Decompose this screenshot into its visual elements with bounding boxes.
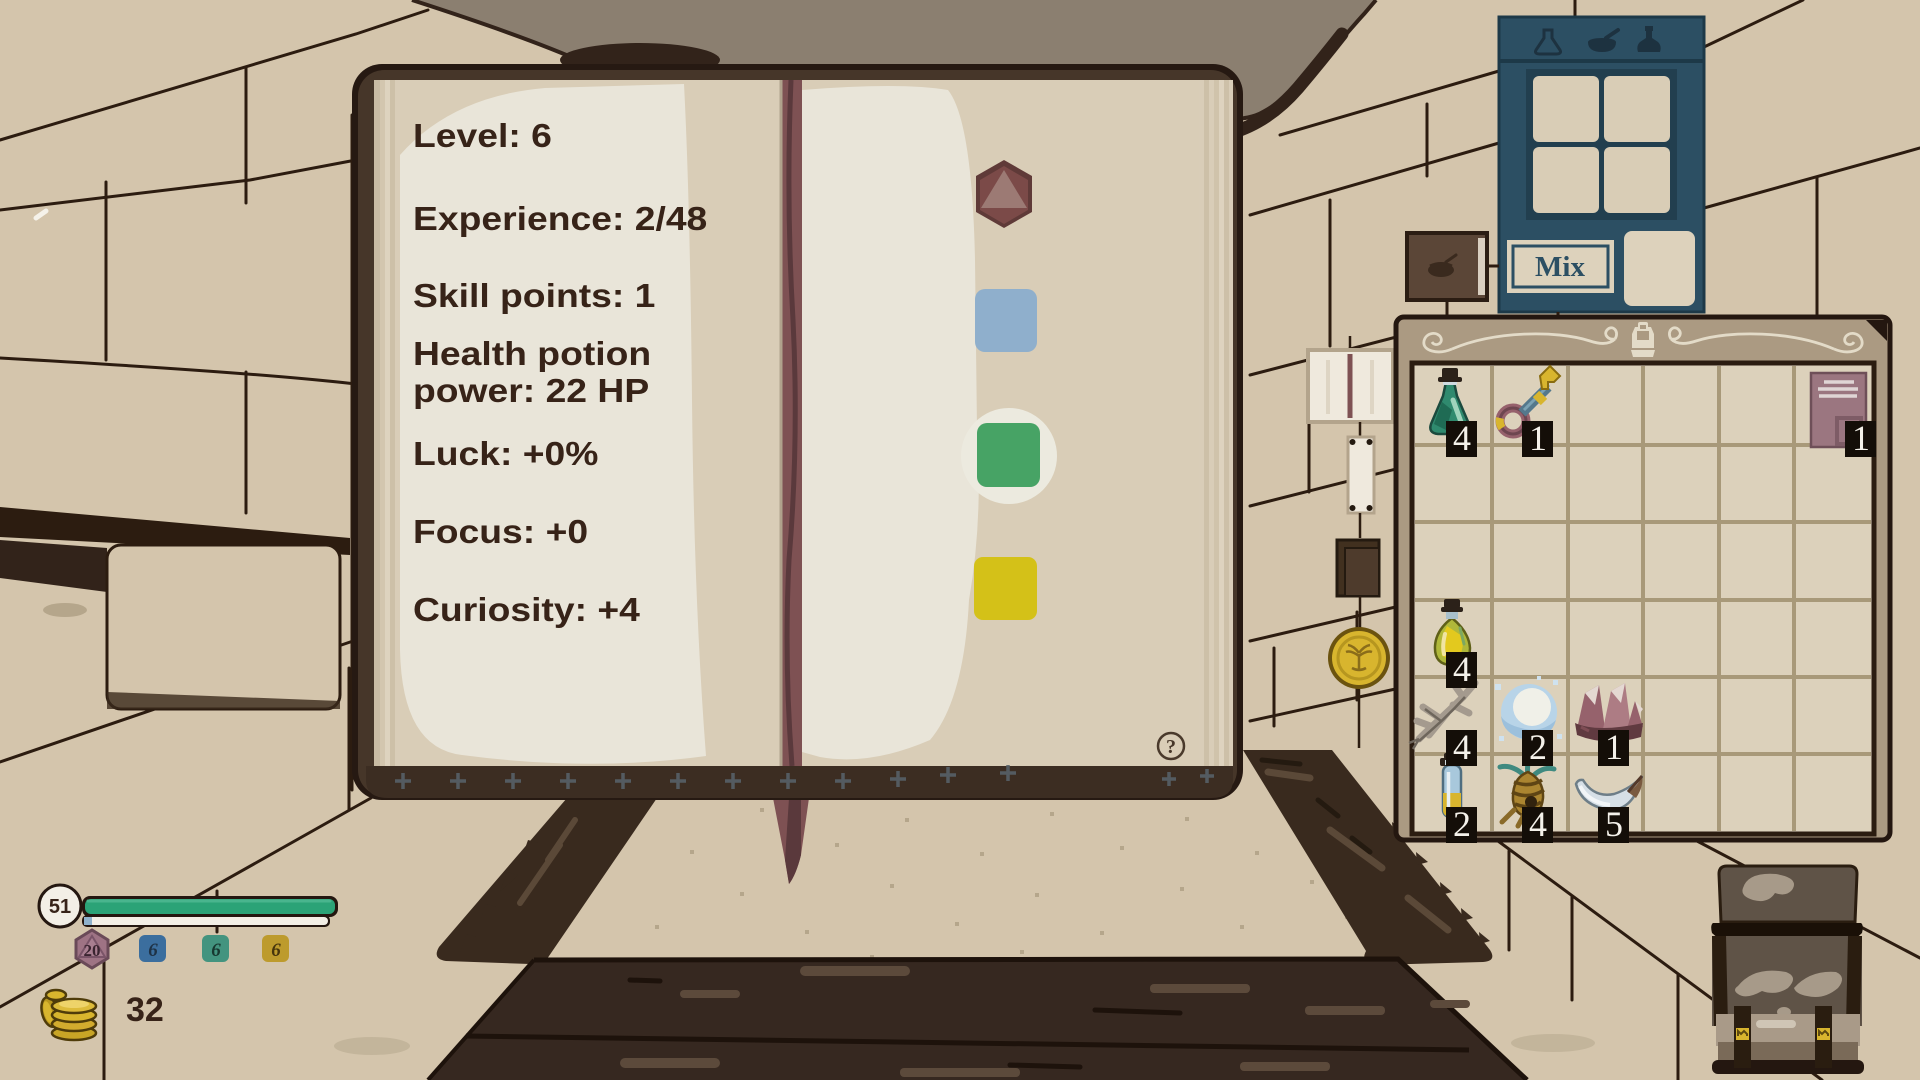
svg-text:?: ? [1166, 736, 1176, 758]
svg-text:4: 4 [1453, 727, 1471, 767]
svg-text:6: 6 [271, 940, 281, 961]
svg-text:1: 1 [1605, 727, 1623, 767]
svg-text:4: 4 [1453, 418, 1471, 458]
svg-text:51: 51 [49, 896, 71, 918]
svg-text:32: 32 [126, 991, 164, 1029]
svg-text:4: 4 [1453, 649, 1471, 689]
svg-text:Mix: Mix [1535, 251, 1585, 283]
svg-text:Level: 6: Level: 6 [413, 118, 552, 155]
svg-text:1: 1 [1852, 418, 1870, 458]
svg-text:Health potion: Health potion [413, 336, 651, 373]
svg-text:Focus: +0: Focus: +0 [413, 514, 588, 551]
svg-text:Skill points: 1: Skill points: 1 [413, 278, 655, 315]
svg-text:Curiosity: +4: Curiosity: +4 [413, 592, 640, 629]
svg-text:5: 5 [1605, 804, 1623, 844]
svg-text:4: 4 [1529, 804, 1547, 844]
svg-text:1: 1 [1529, 418, 1547, 458]
svg-text:power: 22 HP: power: 22 HP [413, 373, 649, 410]
svg-text:6: 6 [148, 940, 158, 961]
svg-text:6: 6 [211, 940, 221, 961]
svg-text:Luck: +0%: Luck: +0% [413, 436, 598, 473]
svg-text:Experience: 2/48: Experience: 2/48 [413, 201, 707, 238]
svg-text:2: 2 [1453, 804, 1471, 844]
svg-text:2: 2 [1529, 727, 1547, 767]
svg-text:20: 20 [84, 941, 101, 960]
